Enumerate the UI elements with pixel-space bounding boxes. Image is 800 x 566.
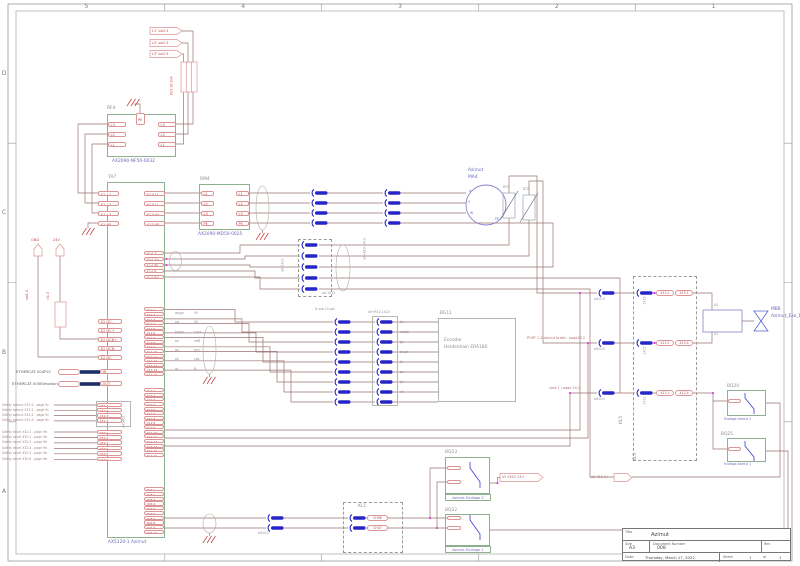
terminal-pill[interactable]: X06:8 [144, 520, 164, 524]
switch-pin[interactable] [447, 480, 461, 485]
dsub-label: D sub 15 pol [315, 308, 335, 312]
terminal-pill[interactable]: X12:12 [144, 439, 164, 443]
cable-label: alt+KL9-1X13 [363, 238, 367, 259]
flag-x12-label: a5 X12 A/ [591, 475, 608, 479]
core-color: gn [400, 370, 409, 380]
terminal-pill[interactable]: X2 DC+ [98, 328, 122, 333]
signal-name: sin+ [194, 348, 202, 357]
bq23-label: Azimut Endlage 2 [445, 494, 491, 501]
ta7-type: AX5120-1 Azimut [108, 540, 146, 545]
schematic-sheet: 54321 DCBA L3 L2 L1 L3 L2 L1 PE L1 L2 L3… [0, 0, 800, 566]
ethercat-in-ref: ETHERCAT 004PLC [16, 369, 51, 374]
terminal-pill[interactable]: X1 L3 [98, 211, 119, 216]
terminal-pill[interactable]: X12:13 [144, 444, 164, 448]
frame-row-label: D [0, 4, 8, 143]
terminal-oval[interactable]: X15.1 [656, 340, 674, 346]
encoder-text: Encoder [444, 338, 462, 343]
phase-flag-label: L3' sw2.5 [152, 52, 169, 56]
channel-oval[interactable]: CH07 [367, 525, 388, 531]
terminal-pill[interactable]: X11:14 [144, 367, 164, 371]
frame-column-label: 5 [8, 3, 165, 11]
date-label: Date: [625, 555, 634, 559]
bq23-ref: BQ23 [445, 450, 457, 455]
wire-color: sw [175, 320, 184, 329]
terminal-pill[interactable]: X31:4 [97, 418, 122, 423]
x14-connector-box [298, 239, 332, 297]
terminal-pill[interactable]: X11:11 [144, 354, 164, 358]
ethercat-plug[interactable] [58, 381, 80, 387]
cable-label: alt-1X13 [322, 292, 335, 296]
x12-terminals: X12:1X12:2X12:3X12:4X12:5X12:6X12:7X12:8… [144, 388, 164, 457]
ta7-ref: TA7 [108, 175, 116, 180]
terminal-pill[interactable]: X2 DC [98, 355, 122, 360]
signal-name: refB [194, 339, 202, 348]
terminal-pill[interactable]: X12:14 [144, 448, 164, 452]
v24-flag-label: 24V [53, 238, 60, 242]
x14-terminals: X14 T-X14 T+X14 PEX14 B-X14 B+ [144, 251, 164, 281]
terminal-pill[interactable]: X11:12 [144, 358, 164, 362]
brake-name: Azimut_Exo_Brake [771, 314, 800, 319]
core-color: ws/gn [400, 330, 409, 340]
terminal-pill[interactable]: X32:1 [97, 430, 122, 435]
wire-color: rd [175, 367, 184, 376]
x1-terminals: X1 L1X1 L2X1 L3X1 PE [98, 191, 119, 231]
rf4-pin[interactable]: L2 [108, 132, 126, 137]
brake-magnet-icon[interactable] [754, 311, 768, 331]
ecat-in-pin[interactable]: IN [100, 369, 122, 374]
rf4-pin[interactable]: L3 [158, 122, 176, 127]
motor-ref: MA4 [468, 175, 478, 180]
date-value: Thursday, March 17, 2022 [645, 555, 695, 560]
terminal-pill[interactable]: X11:5 [144, 326, 164, 330]
ethercat-out-ref: ETHERCAT 005Elevation [12, 381, 58, 386]
sheet-label: Sheet [723, 555, 733, 559]
switch-symbols [470, 393, 754, 540]
terminal-pill[interactable]: X06:6 [144, 511, 164, 515]
terminal-pill[interactable]: X12:11 [144, 434, 164, 438]
frame-column-label: 1 [635, 3, 792, 11]
core-color: pk [400, 380, 409, 390]
switch-pin[interactable] [728, 447, 741, 452]
rev-label: Rev [764, 542, 770, 546]
xref-line: Safety decel X32:5 - page 9b [2, 451, 47, 456]
terminal-pill[interactable]: X32:2 [97, 435, 122, 440]
terminal-pill[interactable]: X1 L1 [98, 191, 119, 196]
ground-icon [256, 233, 269, 240]
terminal-pill[interactable]: X12:9 [144, 425, 164, 429]
terminal-pill[interactable]: X06:1 [144, 487, 164, 491]
phase-flag-label: L1' sw2.5 [152, 29, 169, 33]
x11-signal-labels: 5V0Vcos+refBsin+cos-B- [194, 311, 202, 376]
rf4-ref: RF4 [107, 106, 115, 111]
x32-terminals: X32:1X32:2X32:3X32:4X32:5X32:6 [97, 430, 122, 463]
size-row: Size A3 Document Number 008 Rev [623, 541, 790, 553]
terminal-pill[interactable]: X14 PE [144, 263, 164, 268]
sheet-value: 1 [749, 555, 751, 560]
wire-label: sw1.5 [25, 290, 29, 300]
rm4-pin[interactable]: L2 [201, 201, 214, 206]
x11-color-labels: ws/gnswbn/gnbkgnpkrd [175, 311, 184, 376]
motor-pin-v: V [468, 201, 470, 205]
rf4-pe-pin[interactable]: PE [136, 113, 145, 125]
rf4-type: AX2090-NF50-0032 [112, 159, 155, 164]
rm4-pin[interactable]: L3 [201, 211, 214, 216]
terminal-pill[interactable]: X12:2 [144, 393, 164, 397]
ground-icon [203, 536, 216, 543]
terminal-pill[interactable]: X14 T+ [144, 257, 164, 262]
brake-relay-coil[interactable] [703, 310, 742, 332]
rf4-pin[interactable]: L3 [108, 122, 126, 127]
rf4-pin[interactable]: L1 [108, 142, 126, 147]
x31-terminals: X31:1X31:2X31:3X31:4 [97, 403, 122, 424]
terminal-pill[interactable]: X13 PE [144, 221, 165, 226]
bq22-label: Azimut Endlage 1 [445, 546, 491, 553]
terminal-pill[interactable]: X11:13 [144, 363, 164, 367]
wire-label: rt1.5 [46, 292, 50, 300]
signal-name: cos+ [194, 330, 202, 339]
terminal-pill[interactable]: X06:2 [144, 492, 164, 496]
port-xref-text: PORT 1.2 azimut brake - page20.2 [527, 336, 585, 340]
title-row: Title Azimut [623, 529, 790, 541]
x31-xrefs: Safety azimut X31:1 - page 9cSafety azim… [2, 403, 49, 424]
bq25-ref: BQ25 [721, 432, 733, 437]
relay-pin-a1: A1 [714, 333, 718, 337]
plug-id: 1X15 [643, 347, 647, 355]
terminal-oval[interactable]: X12.4 [675, 390, 693, 396]
plug-id: 1X15 [643, 297, 647, 305]
rm4-pin[interactable]: PE [201, 221, 214, 226]
plug-label: alt-X12 [594, 398, 605, 402]
terminal-pill[interactable]: X14 B- [144, 269, 164, 274]
terminal-pill[interactable]: X1 PE [98, 221, 119, 226]
core-color: rd [400, 390, 409, 400]
terminal-pill[interactable]: X11:6 [144, 330, 164, 334]
kl1-label: KL1 [358, 504, 366, 509]
core-color: bk [400, 320, 409, 330]
encoder-text: Heidenhain ERA180 [444, 345, 487, 350]
thermistor-label: BT2 [523, 188, 529, 192]
terminal-pill[interactable]: X32:6 [97, 457, 122, 462]
frame-column-label: 4 [165, 3, 322, 11]
signal-name: B- [194, 367, 202, 376]
terminal-pill[interactable]: X11:1 [144, 307, 164, 311]
terminal-pill[interactable]: X2 DC- [98, 319, 122, 324]
x13-terminals: X13 UX13 VX13 WX13 PE [144, 191, 165, 231]
terminal-pill[interactable]: X06:4 [144, 501, 164, 505]
terminal-oval[interactable]: X15.1 [675, 290, 693, 296]
doc-title: Azimut [651, 533, 669, 538]
terminal-pill[interactable]: X13 U [144, 191, 165, 196]
motor-circle[interactable] [466, 185, 506, 225]
signal-name: 5V [194, 311, 202, 320]
encoder-block[interactable] [438, 318, 516, 402]
terminal-oval[interactable]: X12.1 [656, 390, 674, 396]
x11-terminals: X11:1X11:2X11:3X11:4X11:5X11:6X11:7X11:8… [144, 307, 164, 376]
encoder-ref: BG11 [440, 311, 452, 316]
rm4-pin[interactable]: L2 [236, 201, 249, 206]
fuse-label: K03 16-20A [170, 77, 174, 95]
terminal-pill[interactable]: X32:4 [97, 446, 122, 451]
size-label: Size [625, 542, 632, 546]
doc-value: 008 [657, 546, 666, 551]
pe-icon [127, 99, 140, 106]
wire-color: gn [175, 348, 184, 357]
rm4-pin[interactable]: L3 [236, 211, 249, 216]
terminal-pill[interactable]: X12:4 [144, 402, 164, 406]
terminal-pill[interactable]: X12:10 [144, 430, 164, 434]
terminal-pill[interactable]: X12:15 [144, 453, 164, 457]
terminal-oval[interactable]: X15.1 [656, 290, 674, 296]
kl5-label: KL5 [633, 453, 638, 461]
x06-terminals: X06:1X06:2X06:3X06:4X06:5X06:6X06:7X06:8… [144, 487, 164, 535]
rm4-ref: RM4 [200, 177, 210, 182]
kl5-label: KL5 [619, 416, 624, 424]
ethercat-cables [80, 370, 100, 386]
x2-dc-terminals: X2 DC-X2 DC+X2 DCB+X2 DCB-X2 DC [98, 319, 122, 364]
ethercat-plug[interactable] [58, 369, 80, 375]
rm4-pin[interactable]: L1 [201, 191, 214, 196]
xref-line: Safety decel X32:3 - page 9b [2, 440, 47, 445]
xref-line: Safety azimut X31:4 - page 9c [2, 418, 49, 423]
terminal-pill[interactable]: X06:10 [144, 530, 164, 534]
ground-icon [203, 377, 216, 384]
motor-pin-pe: PE [495, 218, 499, 222]
plug-id: 1X12 [643, 397, 647, 405]
core-color: bn/gn [400, 350, 409, 360]
terminal-pill[interactable]: X31:1 [97, 403, 122, 408]
title-block: Title Azimut Size A3 Document Number 008… [622, 528, 791, 561]
flag-zk-label: a5 ZK02 24V [502, 475, 524, 479]
ground-icon [82, 228, 95, 235]
doc-label: Document Number [653, 542, 685, 546]
sheet-total: 1 [779, 555, 781, 560]
frame-column-ruler: 54321 [8, 3, 792, 11]
core-color-labels: bkws/gngybn/gnblgnpkrd [400, 320, 409, 400]
wire-color: bk [175, 339, 184, 348]
terminal-pill[interactable]: X32:3 [97, 440, 122, 445]
relay-pin-a2: A2 [714, 304, 718, 308]
terminal-pill[interactable]: X13 V [144, 201, 165, 206]
cable-label: alt+R13-1X23 [368, 311, 390, 315]
terminal-pill[interactable]: X2 DCB+ [98, 337, 122, 342]
terminal-pill[interactable]: X12:1 [144, 388, 164, 392]
rm4-type: AX2090-MD50-0025 [198, 232, 242, 237]
encoder-connector-box [372, 316, 398, 406]
terminal-pill[interactable]: X2 DCB- [98, 346, 122, 351]
cable-label: alt-1X13 [281, 258, 285, 271]
channel-oval[interactable]: CH08 [367, 515, 388, 521]
motor-pin-w: W [470, 212, 473, 216]
rf4-pin[interactable]: L1 [158, 142, 176, 147]
frame-row-ruler: DCBA [0, 4, 8, 561]
safety-option-label: AX5801 [122, 415, 126, 427]
title-label: Title [625, 530, 632, 534]
signal-name: 0V [194, 320, 202, 329]
cont-xref-text: cont.1 / page 20.1 [549, 386, 580, 390]
terminal-oval[interactable]: X15.4 [675, 340, 693, 346]
frame-column-label: 3 [322, 3, 479, 11]
terminal-pill[interactable]: X06:3 [144, 497, 164, 501]
motor-name: Azimut [468, 168, 483, 173]
ecat-out-pin[interactable]: OUT [100, 381, 122, 386]
rm4-pin[interactable]: PE [236, 221, 249, 226]
terminal-pill[interactable]: X11:9 [144, 344, 164, 348]
core-color: bl [400, 360, 409, 370]
terminal-pill[interactable]: X06:7 [144, 516, 164, 520]
motor-pin-u: U [469, 190, 471, 194]
terminal-pill[interactable]: X11:8 [144, 340, 164, 344]
terminal-pill[interactable]: X11:7 [144, 335, 164, 339]
terminal-pill[interactable]: X11:2 [144, 312, 164, 316]
brake-ref: MB8 [771, 307, 781, 312]
frame-column-label: 2 [478, 3, 635, 11]
wire-color: pk [175, 357, 184, 366]
terminal-pill[interactable]: X11:10 [144, 349, 164, 353]
bq24-label: Endlage Azimut 2 [724, 418, 751, 422]
thermistor-label: BT1 [503, 186, 509, 190]
gnd-flag-label: GND [31, 238, 39, 242]
terminal-pill[interactable]: X1 L2 [98, 201, 119, 206]
x32-xrefs: Safety decel X32:1 - page 9bSafety decel… [2, 430, 47, 463]
core-color: gy [400, 340, 409, 350]
bq24-ref: BQ24 [727, 384, 739, 389]
terminal-pill[interactable]: X06:5 [144, 506, 164, 510]
terminal-pill[interactable]: X13 W [144, 211, 165, 216]
terminal-pill[interactable]: X11:4 [144, 321, 164, 325]
xref-line: Safety decel X32:6 - page 9b [2, 457, 47, 462]
limit-switch-bq23[interactable] [445, 457, 490, 494]
sheet-of: of [763, 555, 766, 559]
bq22-ref: BQ22 [445, 508, 457, 513]
terminal-pill[interactable]: X12:8 [144, 420, 164, 424]
phase-flag-label: L2' sw2.5 [152, 41, 169, 45]
terminal-pill[interactable]: X12:5 [144, 407, 164, 411]
frame-row-label: B [0, 283, 8, 422]
terminal-pill[interactable]: X31:2 [97, 408, 122, 413]
rm4-pin[interactable]: L1 [236, 191, 249, 196]
terminal-pill[interactable]: X14 B+ [144, 275, 164, 280]
terminal-pill[interactable]: X32:5 [97, 451, 122, 456]
terminal-pill[interactable]: X31:3 [97, 413, 122, 418]
terminal-pill[interactable]: X12:7 [144, 416, 164, 420]
date-row: Date: Thursday, March 17, 2022 Sheet 1 o… [623, 553, 790, 562]
terminal-pill[interactable]: X14 T- [144, 251, 164, 256]
switch-pin[interactable] [728, 399, 741, 404]
terminal-pill[interactable]: X06:9 [144, 525, 164, 529]
signal-name: cos- [194, 357, 202, 366]
terminal-pill[interactable]: X12:3 [144, 397, 164, 401]
plug-label: alt-X15 [594, 298, 605, 302]
switch-pin[interactable] [447, 516, 461, 521]
wire-color: bn/gn [175, 330, 184, 339]
plug-label: alt-X15 [594, 348, 605, 352]
switch-pin[interactable] [447, 466, 461, 471]
cable-label: alt-X12 [258, 532, 269, 536]
size-value: A3 [629, 546, 635, 551]
frame-row-label: C [0, 143, 8, 282]
terminal-pill[interactable]: X11:15 [144, 372, 164, 376]
terminal-pill[interactable]: X11:3 [144, 317, 164, 321]
bq25-label: Endlage Azimut 1 [724, 463, 751, 467]
terminal-pill[interactable]: X12:6 [144, 411, 164, 415]
rf4-pin[interactable]: L2 [158, 132, 176, 137]
switch-pin[interactable] [447, 526, 461, 531]
wire-color: ws/gn [175, 311, 184, 320]
